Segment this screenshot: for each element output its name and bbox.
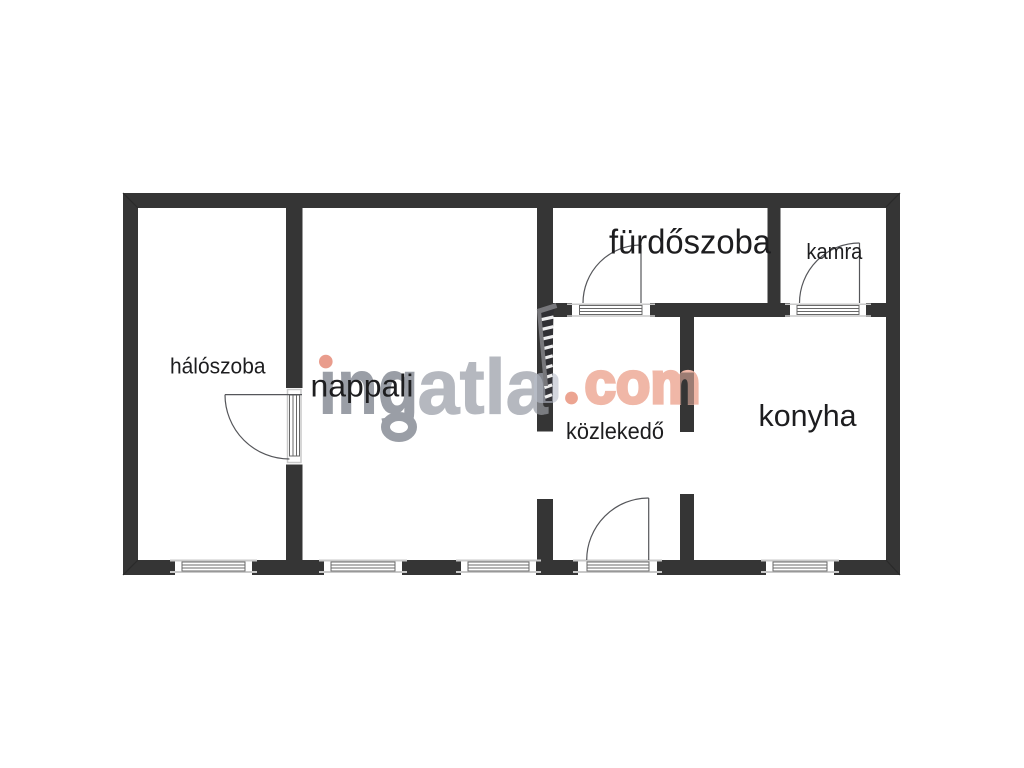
svg-text:kamra: kamra [806, 239, 862, 264]
svg-text:fürdőszoba: fürdőszoba [609, 223, 771, 261]
svg-text:konyha: konyha [759, 399, 857, 433]
svg-text:nappali: nappali [311, 367, 414, 403]
svg-text:közlekedő: közlekedő [566, 418, 664, 444]
svg-text:atla: atla [418, 343, 549, 431]
svg-text:hálószoba: hálószoba [170, 354, 266, 379]
